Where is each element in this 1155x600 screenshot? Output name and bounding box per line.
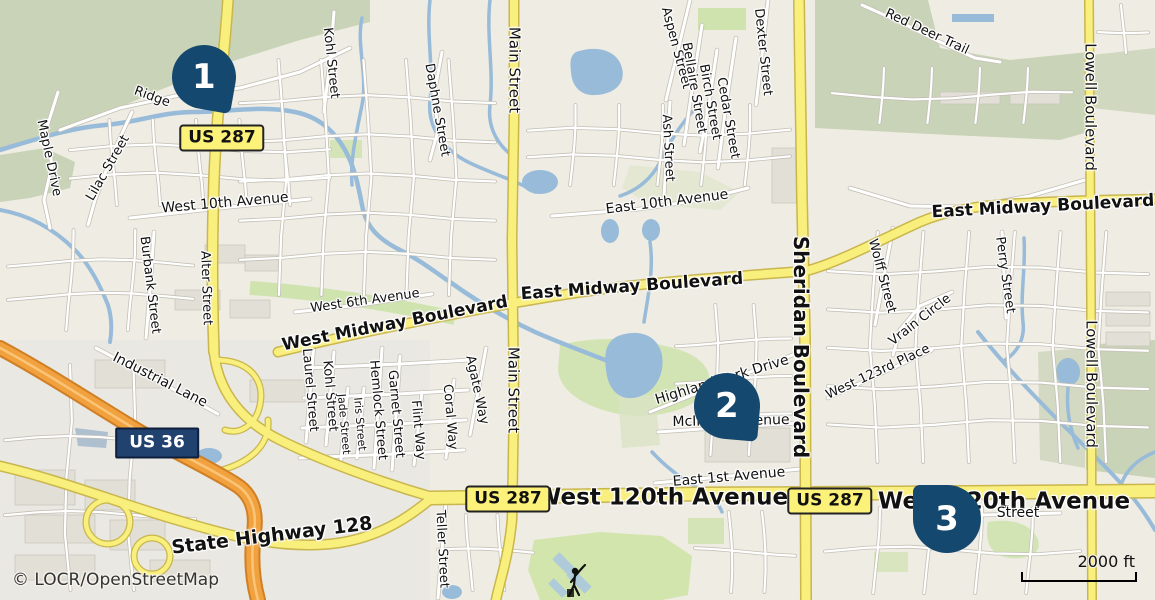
route-shield-us36: US 36: [115, 428, 199, 459]
route-shield-us287-north: US 287: [179, 125, 264, 152]
route-shield-us287-east: US 287: [787, 488, 872, 515]
scale-bar: [1021, 572, 1137, 582]
map-canvas[interactable]: RidgeMaple DriveLilac StreetKohl StreetD…: [0, 0, 1155, 600]
marker-number: 1: [192, 60, 216, 94]
map-attribution: © LOCR/OpenStreetMap: [12, 570, 219, 590]
marker-pin-3[interactable]: 3: [913, 485, 981, 553]
map-base: [0, 0, 1155, 600]
scale-label: 2000 ft: [1021, 552, 1137, 571]
scale-widget: 2000 ft: [1021, 552, 1137, 582]
marker-number: 2: [715, 389, 739, 423]
route-shield-us287-west: US 287: [465, 486, 550, 513]
marker-number: 3: [935, 502, 959, 536]
